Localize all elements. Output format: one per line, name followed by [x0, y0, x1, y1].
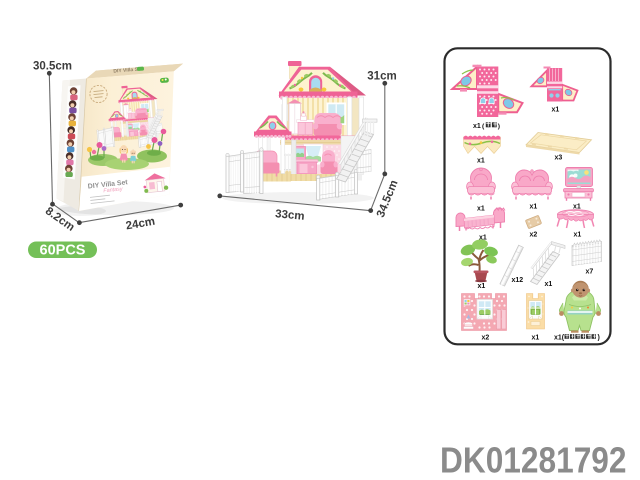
svg-text:x2: x2 [482, 335, 490, 342]
svg-text:60PCS: 60PCS [40, 243, 86, 259]
svg-text:x1: x1 [473, 123, 481, 130]
svg-text:x1: x1 [479, 235, 487, 242]
svg-text:x1: x1 [545, 281, 553, 288]
svg-text:x1: x1 [573, 204, 581, 211]
svg-text:x2: x2 [530, 232, 538, 239]
svg-text:x1: x1 [477, 158, 485, 165]
svg-text:33cm: 33cm [275, 208, 305, 223]
svg-text:x1: x1 [530, 204, 538, 211]
svg-text:30.5cm: 30.5cm [33, 61, 72, 73]
svg-text:x3: x3 [555, 155, 563, 162]
svg-text:24cm: 24cm [125, 216, 156, 233]
svg-text:x1: x1 [478, 283, 486, 290]
svg-text:): ) [498, 123, 500, 130]
svg-text:x1: x1 [477, 206, 485, 213]
svg-text:x1(: x1( [554, 335, 565, 342]
svg-text:): ) [598, 335, 600, 342]
svg-text:x1: x1 [532, 335, 540, 342]
svg-text:x7: x7 [586, 269, 594, 276]
svg-text:x1: x1 [552, 107, 560, 114]
svg-text:DK01281792: DK01281792 [440, 440, 627, 480]
svg-text:x1: x1 [574, 232, 582, 239]
svg-text:34.5cm: 34.5cm [375, 179, 401, 220]
svg-text:x12: x12 [512, 277, 524, 284]
svg-text:31cm: 31cm [367, 70, 396, 82]
